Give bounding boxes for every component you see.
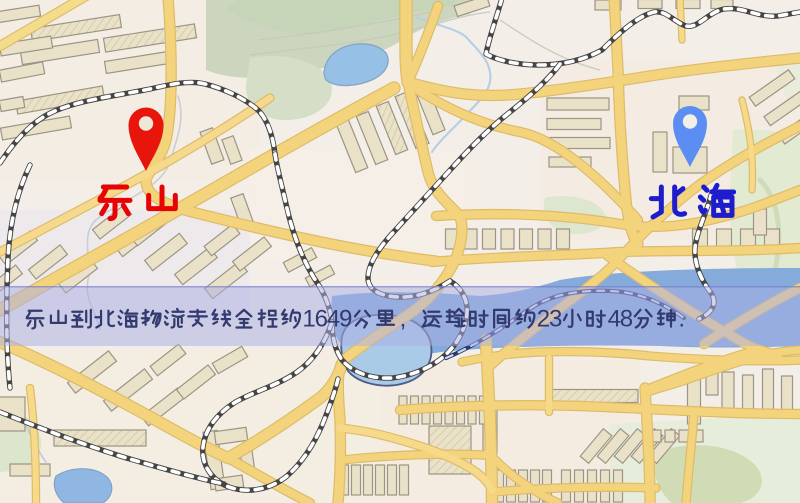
svg-text:,: , bbox=[400, 305, 407, 332]
svg-text:9: 9 bbox=[339, 305, 352, 332]
svg-text:.: . bbox=[678, 305, 685, 332]
svg-text:3: 3 bbox=[549, 305, 562, 332]
svg-text:8: 8 bbox=[620, 305, 633, 332]
